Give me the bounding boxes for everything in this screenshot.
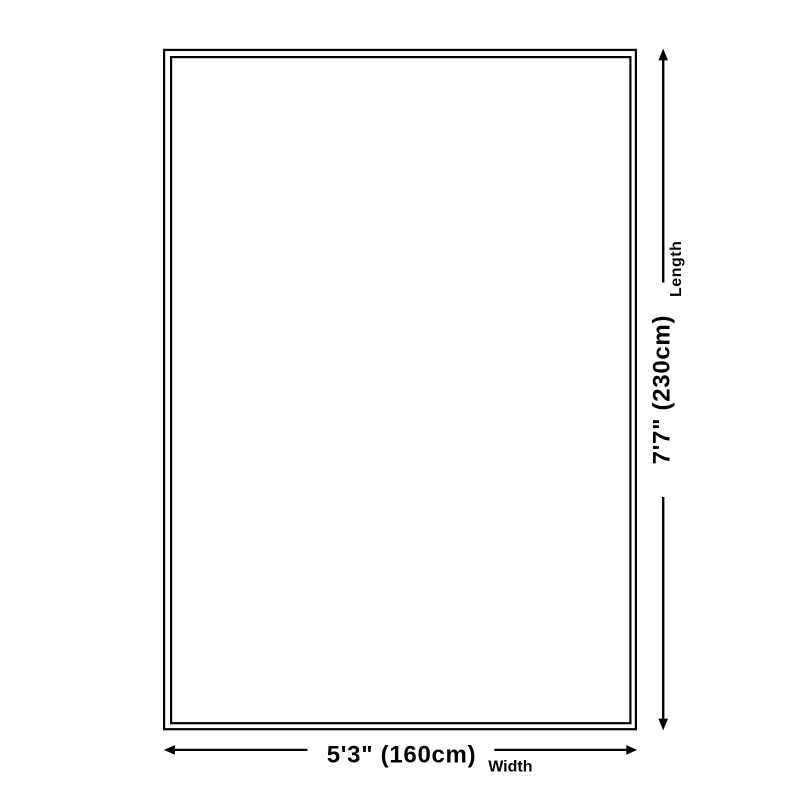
svg-text:Length: Length: [668, 241, 685, 297]
svg-text:Width: Width: [488, 759, 532, 776]
svg-text:5'3" (160cm): 5'3" (160cm): [327, 742, 477, 769]
svg-text:7'7" (230cm): 7'7" (230cm): [649, 315, 676, 465]
